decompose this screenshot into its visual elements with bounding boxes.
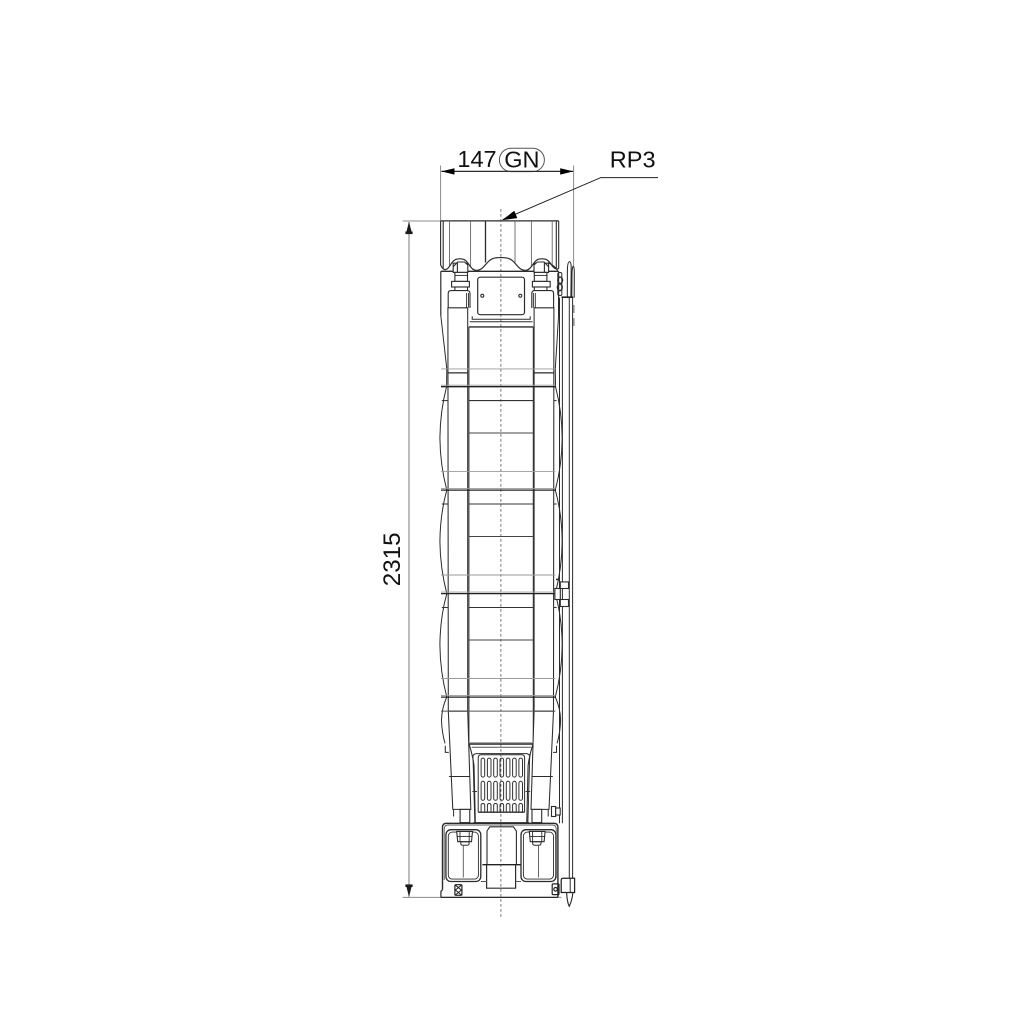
svg-text:147: 147 [457,146,496,172]
svg-text:2315: 2315 [379,532,406,586]
svg-text:RP3: RP3 [610,147,656,173]
svg-text:GN: GN [504,146,539,172]
